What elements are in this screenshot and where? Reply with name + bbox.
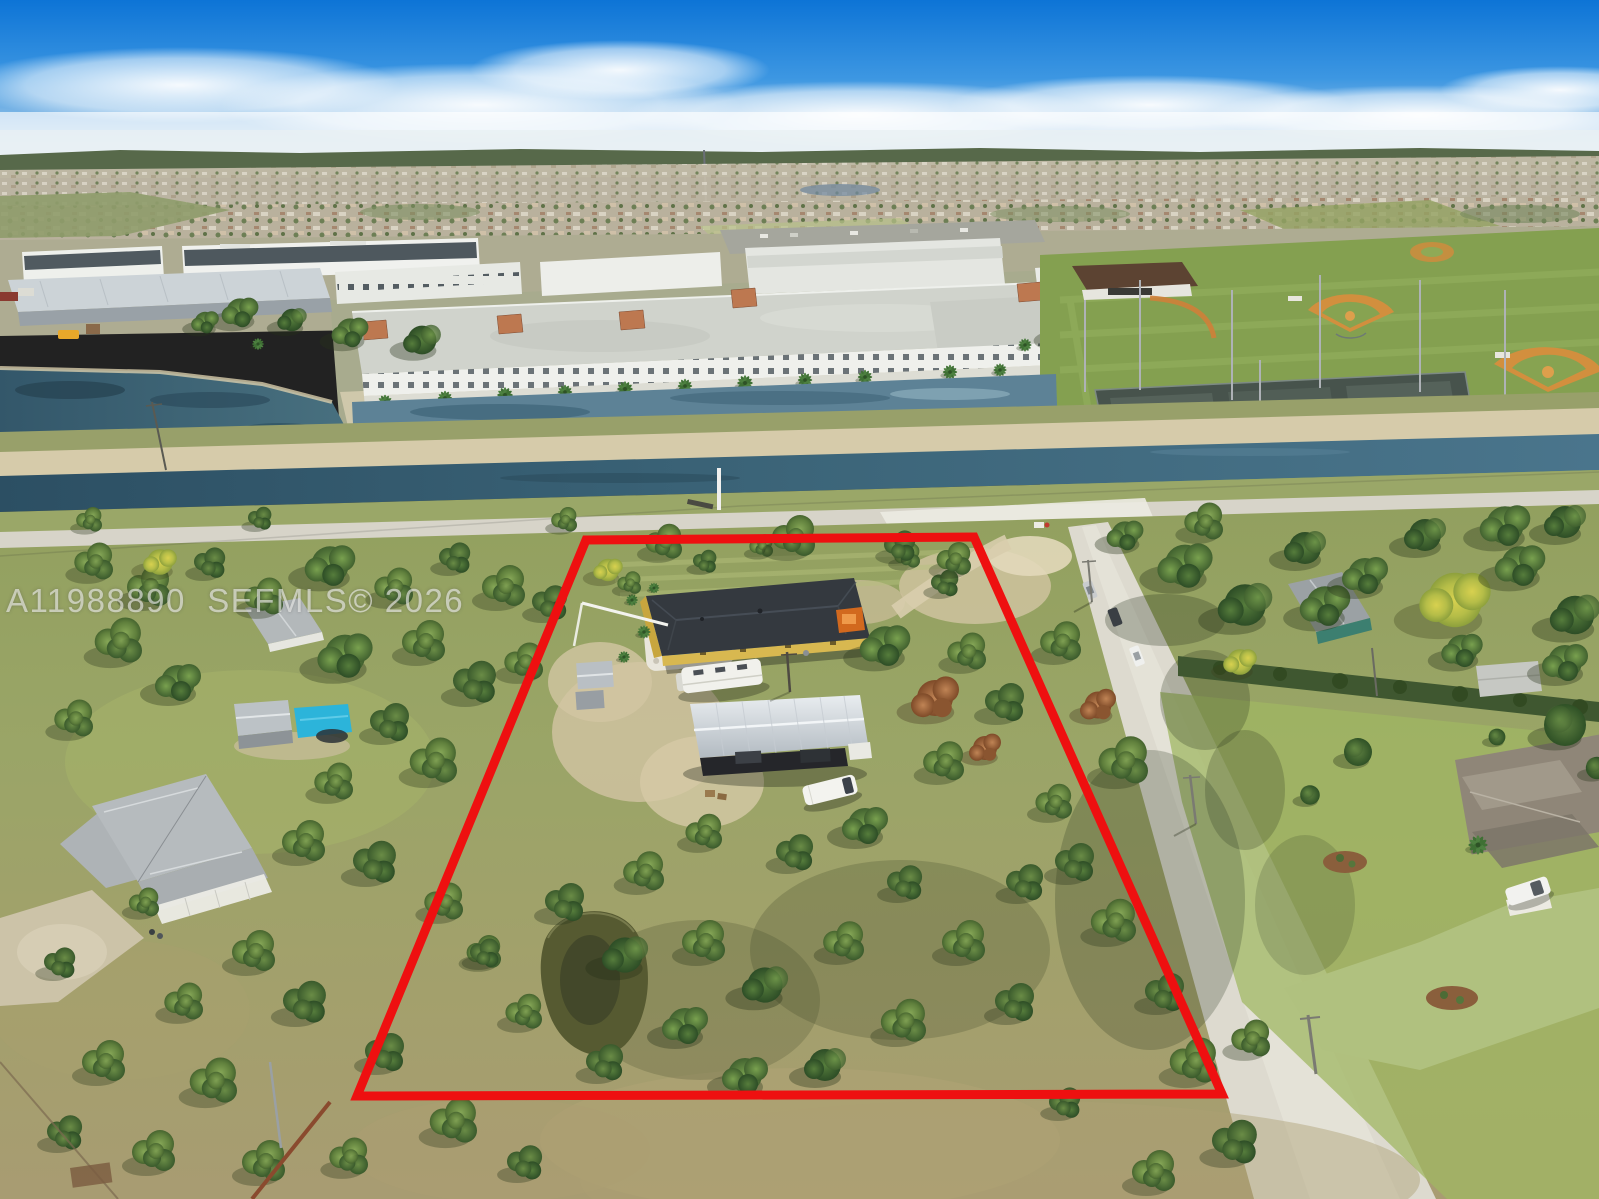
small-shed: [86, 324, 100, 334]
stadium-pavilion: [1072, 262, 1198, 300]
aerial-listing-photo: A11988890 SEFMLS© 2026: [0, 0, 1599, 1199]
aerial-photo-canvas: [0, 0, 1599, 1199]
school-bus: [58, 330, 79, 339]
workshop-building: [683, 695, 872, 787]
